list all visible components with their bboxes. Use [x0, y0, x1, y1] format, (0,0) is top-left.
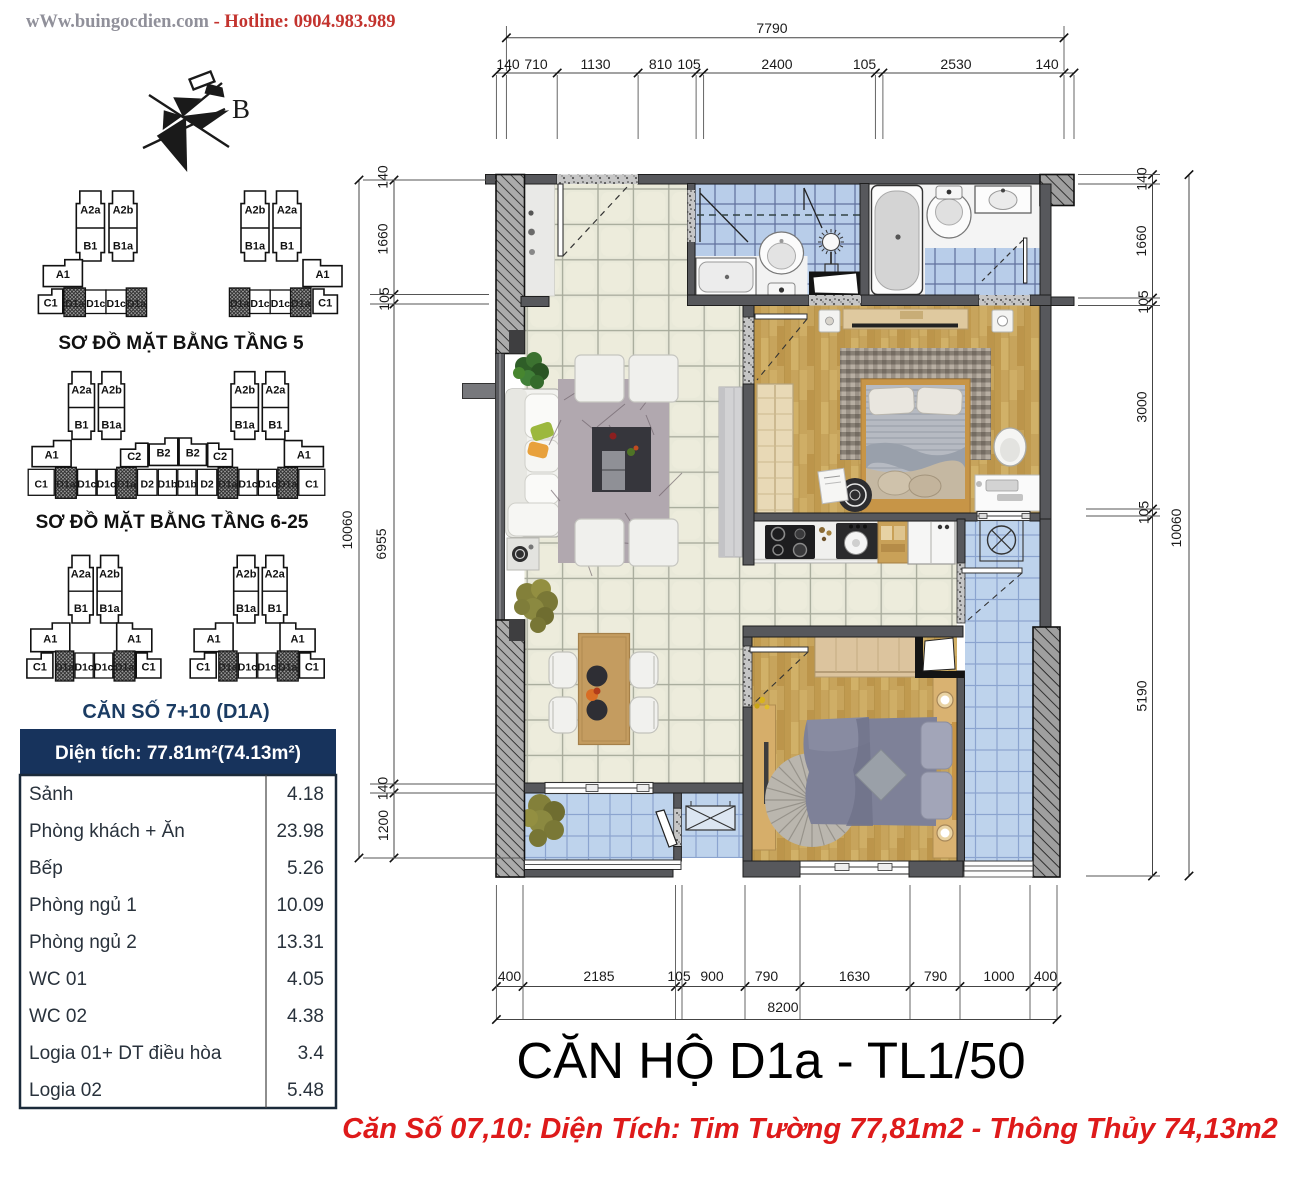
svg-text:A2b: A2b: [101, 385, 122, 397]
svg-text:D1c: D1c: [238, 662, 257, 674]
svg-text:10060: 10060: [339, 510, 355, 549]
svg-text:A2b: A2b: [245, 205, 266, 217]
svg-text:400: 400: [1034, 968, 1058, 984]
svg-text:A1: A1: [291, 633, 305, 645]
svg-text:C1: C1: [305, 478, 319, 490]
svg-text:105: 105: [1136, 501, 1152, 525]
svg-text:140: 140: [375, 777, 391, 801]
svg-text:900: 900: [700, 968, 724, 984]
svg-text:23.98: 23.98: [276, 821, 324, 842]
svg-text:5.48: 5.48: [287, 1080, 324, 1101]
svg-text:B1a: B1a: [99, 603, 120, 615]
svg-text:WC 01: WC 01: [29, 969, 87, 990]
svg-text:Sảnh: Sảnh: [29, 784, 73, 805]
svg-text:A2a: A2a: [71, 385, 92, 397]
svg-text:SƠ ĐỒ MẶT BẰNG TẦNG 6-25: SƠ ĐỒ MẶT BẰNG TẦNG 6-25: [36, 511, 309, 533]
svg-text:D1a: D1a: [55, 662, 74, 674]
svg-text:B1: B1: [268, 603, 282, 615]
svg-text:140: 140: [496, 56, 520, 72]
svg-text:140: 140: [1035, 56, 1059, 72]
svg-text:D1c: D1c: [86, 298, 105, 310]
svg-text:D1c: D1c: [97, 478, 116, 490]
svg-text:D1c: D1c: [257, 662, 276, 674]
svg-text:790: 790: [924, 968, 948, 984]
svg-text:D1a: D1a: [127, 298, 146, 310]
svg-text:7790: 7790: [756, 20, 787, 36]
svg-text:Phòng khách + Ăn: Phòng khách + Ăn: [29, 821, 185, 842]
svg-text:B2: B2: [156, 448, 170, 460]
svg-text:400: 400: [498, 968, 522, 984]
svg-text:SƠ ĐỒ MẶT BẰNG TẦNG 5: SƠ ĐỒ MẶT BẰNG TẦNG 5: [58, 332, 304, 354]
svg-text:A2b: A2b: [113, 205, 134, 217]
svg-text:Bếp: Bếp: [29, 858, 63, 879]
svg-text:C1: C1: [142, 662, 156, 674]
svg-text:B1: B1: [268, 419, 282, 431]
svg-text:C1: C1: [33, 662, 47, 674]
svg-text:A2a: A2a: [277, 205, 298, 217]
svg-text:3000: 3000: [1134, 391, 1150, 422]
svg-text:105: 105: [1135, 290, 1151, 314]
svg-text:D1a: D1a: [291, 298, 310, 310]
svg-text:2530: 2530: [940, 56, 971, 72]
svg-text:D1c: D1c: [250, 298, 269, 310]
svg-text:C1: C1: [196, 662, 210, 674]
svg-text:C1: C1: [34, 478, 48, 490]
svg-text:D1c: D1c: [271, 298, 290, 310]
svg-text:4.38: 4.38: [287, 1006, 324, 1027]
svg-text:A1: A1: [207, 633, 221, 645]
svg-text:C2: C2: [213, 451, 227, 463]
svg-text:D1c: D1c: [238, 478, 257, 490]
svg-text:A1: A1: [56, 269, 70, 281]
svg-text:C1: C1: [44, 297, 58, 309]
svg-text:5190: 5190: [1134, 680, 1150, 711]
svg-text:Phòng ngủ 2: Phòng ngủ 2: [29, 932, 137, 953]
svg-text:B: B: [232, 94, 250, 124]
svg-text:B1: B1: [280, 241, 294, 253]
svg-text:10060: 10060: [1168, 508, 1184, 547]
svg-text:105: 105: [667, 968, 691, 984]
svg-text:6955: 6955: [373, 528, 389, 559]
svg-text:Diện tích: 77.81m²(74.13m²): Diện tích: 77.81m²(74.13m²): [55, 743, 301, 764]
svg-text:A2a: A2a: [265, 568, 286, 580]
svg-text:D1a: D1a: [230, 298, 249, 310]
svg-text:8200: 8200: [767, 999, 798, 1015]
svg-text:D1a: D1a: [278, 662, 297, 674]
svg-text:D1c: D1c: [258, 478, 277, 490]
svg-text:2185: 2185: [583, 968, 614, 984]
svg-text:13.31: 13.31: [276, 932, 324, 953]
svg-text:D1c: D1c: [77, 478, 96, 490]
svg-text:D1c: D1c: [94, 662, 113, 674]
svg-text:B1: B1: [83, 241, 97, 253]
svg-text:A2a: A2a: [265, 385, 286, 397]
svg-text:1660: 1660: [1133, 225, 1149, 256]
svg-text:A2b: A2b: [236, 568, 257, 580]
svg-text:A1: A1: [297, 450, 311, 462]
svg-text:WC 02: WC 02: [29, 1006, 87, 1027]
svg-text:CĂN SỐ 7+10 (D1A): CĂN SỐ 7+10 (D1A): [82, 699, 269, 723]
svg-text:Logia 02: Logia 02: [29, 1080, 102, 1101]
svg-text:140: 140: [1134, 167, 1150, 191]
svg-text:A2b: A2b: [234, 385, 255, 397]
svg-text:1630: 1630: [839, 968, 870, 984]
svg-text:105: 105: [677, 56, 701, 72]
svg-text:B1a: B1a: [236, 603, 257, 615]
svg-text:D1a: D1a: [278, 478, 297, 490]
svg-text:D1b: D1b: [157, 478, 177, 490]
svg-text:D1a: D1a: [218, 662, 237, 674]
svg-text:Logia 01+ DT điều hòa: Logia 01+ DT điều hòa: [29, 1043, 222, 1064]
svg-text:B2: B2: [186, 448, 200, 460]
svg-text:140: 140: [375, 165, 391, 189]
svg-text:105: 105: [853, 56, 877, 72]
svg-text:D1a: D1a: [65, 298, 84, 310]
svg-text:D1c: D1c: [74, 662, 93, 674]
svg-text:A1: A1: [127, 633, 141, 645]
svg-text:B1a: B1a: [113, 241, 134, 253]
svg-text:D1c: D1c: [107, 298, 126, 310]
svg-text:10.09: 10.09: [276, 895, 324, 916]
svg-text:D1b: D1b: [177, 478, 197, 490]
svg-text:D1a: D1a: [115, 662, 134, 674]
svg-text:1130: 1130: [580, 56, 610, 72]
svg-text:A2a: A2a: [71, 568, 92, 580]
svg-text:A1: A1: [45, 450, 59, 462]
svg-text:5.26: 5.26: [287, 858, 324, 879]
svg-text:3.4: 3.4: [298, 1043, 325, 1064]
svg-text:C1: C1: [318, 297, 332, 309]
svg-text:B1a: B1a: [101, 419, 122, 431]
svg-text:CĂN HỘ D1a - TL1/50: CĂN HỘ D1a - TL1/50: [516, 1032, 1025, 1089]
svg-text:C2: C2: [127, 451, 141, 463]
svg-text:D2: D2: [200, 478, 214, 490]
svg-text:1200: 1200: [375, 810, 391, 841]
svg-text:Phòng ngủ 1: Phòng ngủ 1: [29, 895, 137, 916]
svg-text:105: 105: [376, 287, 392, 311]
svg-text:B1: B1: [74, 603, 88, 615]
svg-text:D1a: D1a: [117, 478, 136, 490]
svg-text:1660: 1660: [375, 223, 391, 254]
svg-text:wWw.buingocdien.com - Hotlin: wWw.buingocdien.com - Hotline: 0904.983.…: [26, 12, 396, 32]
svg-text:1000: 1000: [983, 968, 1014, 984]
svg-text:4.18: 4.18: [287, 784, 324, 805]
svg-text:B1a: B1a: [245, 241, 266, 253]
svg-text:D1a: D1a: [56, 478, 75, 490]
svg-text:A1: A1: [43, 633, 57, 645]
svg-text:D1a: D1a: [218, 478, 237, 490]
svg-text:710: 710: [524, 56, 548, 72]
svg-text:B1: B1: [74, 419, 88, 431]
svg-text:C1: C1: [305, 662, 319, 674]
svg-text:Căn Số 07,10: Diện Tích: Tim T: Căn Số 07,10: Diện Tích: Tim Tường 77,81…: [342, 1113, 1278, 1145]
svg-text:4.05: 4.05: [287, 969, 324, 990]
svg-text:810: 810: [649, 56, 673, 72]
svg-text:D2: D2: [141, 478, 155, 490]
svg-text:A1: A1: [315, 269, 329, 281]
svg-text:A2a: A2a: [80, 205, 101, 217]
svg-text:B1a: B1a: [235, 419, 256, 431]
svg-text:790: 790: [755, 968, 779, 984]
svg-text:2400: 2400: [761, 56, 792, 72]
svg-text:A2b: A2b: [99, 568, 120, 580]
